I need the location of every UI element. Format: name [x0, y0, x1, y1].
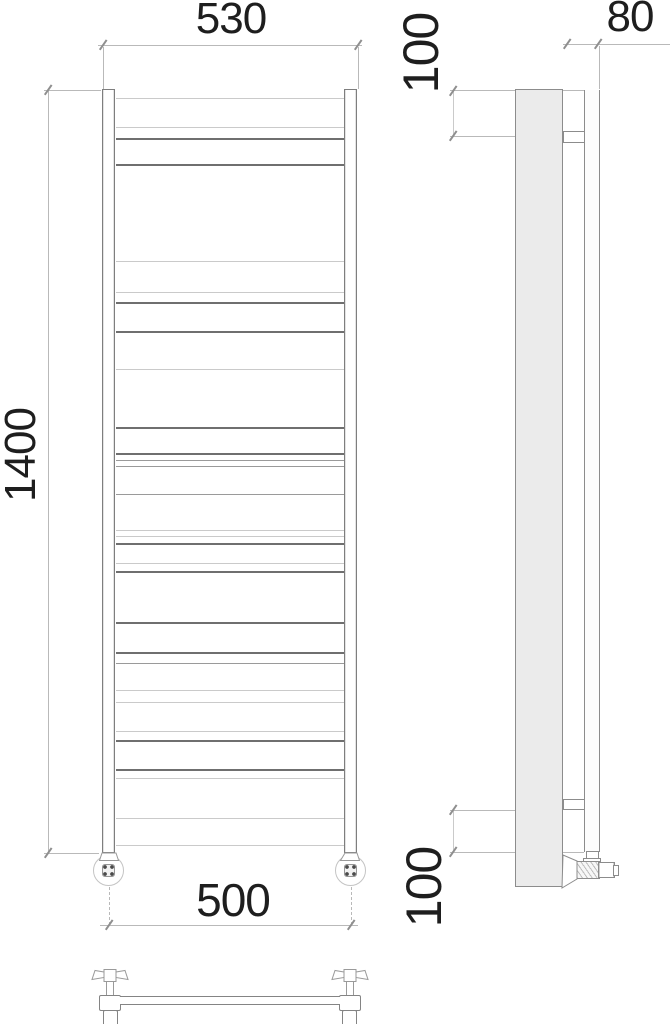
- drawing-vline: [599, 46, 600, 89]
- dim-label-top-width: 530: [196, 0, 266, 41]
- drawing-hline: [44, 853, 99, 854]
- dim-label-side-depth: 80: [607, 0, 654, 39]
- drawing-hline: [116, 690, 344, 691]
- side-valve-tip: [613, 865, 619, 876]
- dim-label-height: 1400: [0, 408, 43, 502]
- drawing-hline: [116, 453, 344, 455]
- front-left-rail: [102, 89, 115, 853]
- drawing-hline: [116, 427, 344, 429]
- drawing-vline: [351, 887, 352, 925]
- drawing-hline: [116, 652, 344, 654]
- drawing-vline: [48, 90, 49, 853]
- drawing-hline: [116, 331, 344, 333]
- drawing-vline: [358, 47, 359, 89]
- drawing-hline: [44, 90, 101, 91]
- drawing-hline: [116, 302, 344, 304]
- dim-label-bottom-width: 500: [196, 877, 270, 923]
- drawing-hline: [116, 663, 344, 664]
- side-bottom-bracket: [563, 799, 585, 810]
- bottom-right-block: [339, 995, 361, 1011]
- front-right-rail: [344, 89, 357, 853]
- drawing-hline: [116, 494, 344, 495]
- drawing-hline: [116, 460, 344, 461]
- drawing-hline: [116, 740, 344, 742]
- drawing-hline: [116, 778, 344, 779]
- dim-label-side-bottom-offset: 100: [399, 847, 449, 927]
- drawing-hline: [563, 44, 670, 45]
- side-collector-tube: [584, 90, 600, 852]
- drawing-hline: [116, 164, 344, 166]
- drawing-hline: [116, 818, 344, 819]
- side-panel-profile: [515, 89, 563, 887]
- drawing-hline: [116, 845, 344, 846]
- drawing-hline: [116, 543, 344, 545]
- drawing-vline: [109, 887, 110, 925]
- drawing-hline: [116, 98, 344, 99]
- drawing-hline: [116, 530, 344, 531]
- bottom-left-foot: [103, 1010, 118, 1024]
- drawing-hline: [98, 45, 362, 46]
- drawing-hline: [116, 369, 344, 370]
- drawing-hline: [116, 138, 344, 140]
- side-top-bracket: [563, 131, 585, 143]
- drawing-hline: [116, 261, 344, 262]
- drawing-hline: [116, 571, 344, 573]
- drawing-hline: [116, 536, 344, 537]
- drawing-hline: [116, 127, 344, 128]
- drawing-vline: [453, 91, 454, 136]
- drawing-vline: [103, 47, 104, 89]
- bottom-right-foot: [342, 1010, 357, 1024]
- drawing-hline: [116, 731, 344, 732]
- dim-label-side-top-offset: 100: [396, 13, 446, 93]
- front-left-valve: [102, 864, 115, 877]
- front-right-valve: [344, 864, 357, 877]
- side-valve-body: [576, 861, 600, 879]
- drawing-hline: [116, 466, 344, 467]
- drawing-vline: [453, 810, 454, 852]
- bottom-rung-tube: [120, 996, 340, 1005]
- drawing-hline: [116, 769, 344, 771]
- drawing-hline: [116, 622, 344, 624]
- drawing-hline: [116, 563, 344, 564]
- drawing-hline: [116, 702, 344, 703]
- drawing-hline: [116, 292, 344, 293]
- bottom-left-block: [99, 995, 121, 1011]
- technical-drawing-canvas: 530 80 100 1400 500 100: [0, 0, 670, 1024]
